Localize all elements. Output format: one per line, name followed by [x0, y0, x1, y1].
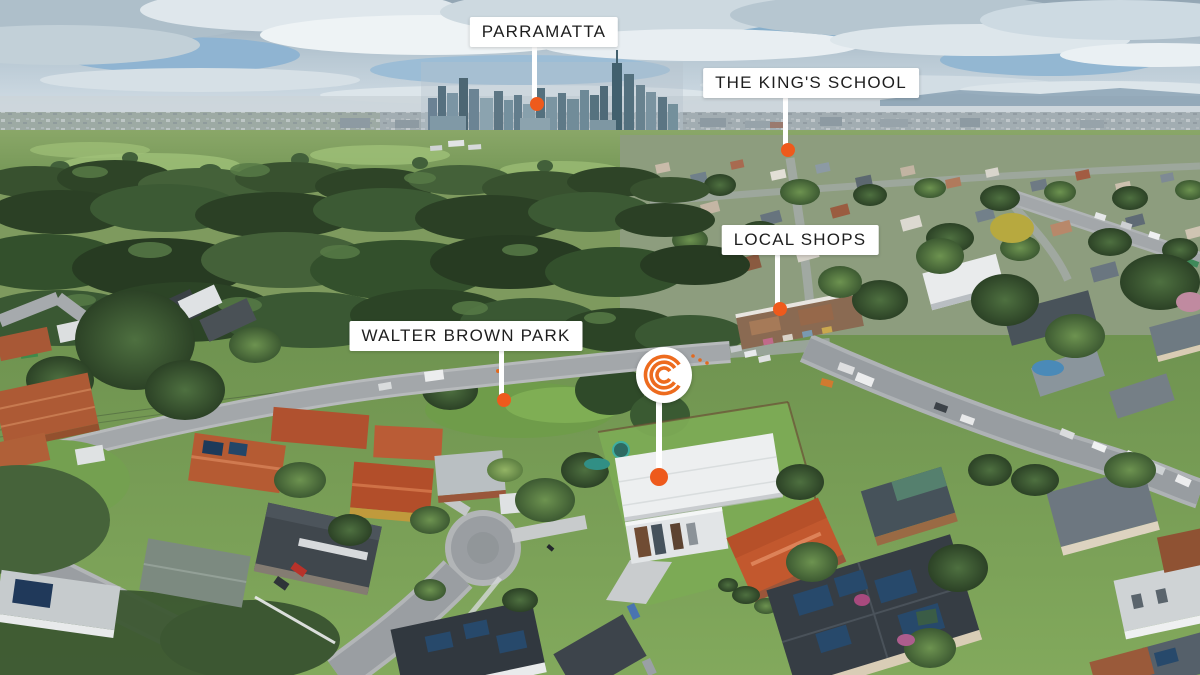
parramatta-label: PARRAMATTA [470, 17, 618, 47]
property-marker-dot [650, 468, 668, 486]
property-marker-circle [636, 347, 692, 403]
local-shops-label: LOCAL SHOPS [722, 225, 879, 255]
local-shops-map-dot [773, 302, 787, 316]
kings-school-map-dot [781, 143, 795, 157]
walter-brown-park-map-dot [497, 393, 511, 407]
property-marker-stem [656, 400, 662, 470]
aerial-photo-canvas: PARRAMATTA THE KING'S SCHOOL LOCAL SHOPS… [0, 0, 1200, 675]
walter-brown-park-label: WALTER BROWN PARK [350, 321, 583, 351]
parramatta-leader-line [532, 46, 537, 104]
brand-c-icon [642, 353, 686, 397]
local-shops-label-text: LOCAL SHOPS [734, 230, 867, 249]
aerial-photo [0, 0, 1200, 675]
local-shops-leader-line [775, 254, 780, 309]
walter-brown-park-label-text: WALTER BROWN PARK [362, 326, 571, 345]
kings-school-label: THE KING'S SCHOOL [703, 68, 919, 98]
kings-school-label-text: THE KING'S SCHOOL [715, 73, 907, 92]
parramatta-label-text: PARRAMATTA [482, 22, 606, 41]
city-skyline [421, 50, 683, 132]
parramatta-map-dot [530, 97, 544, 111]
